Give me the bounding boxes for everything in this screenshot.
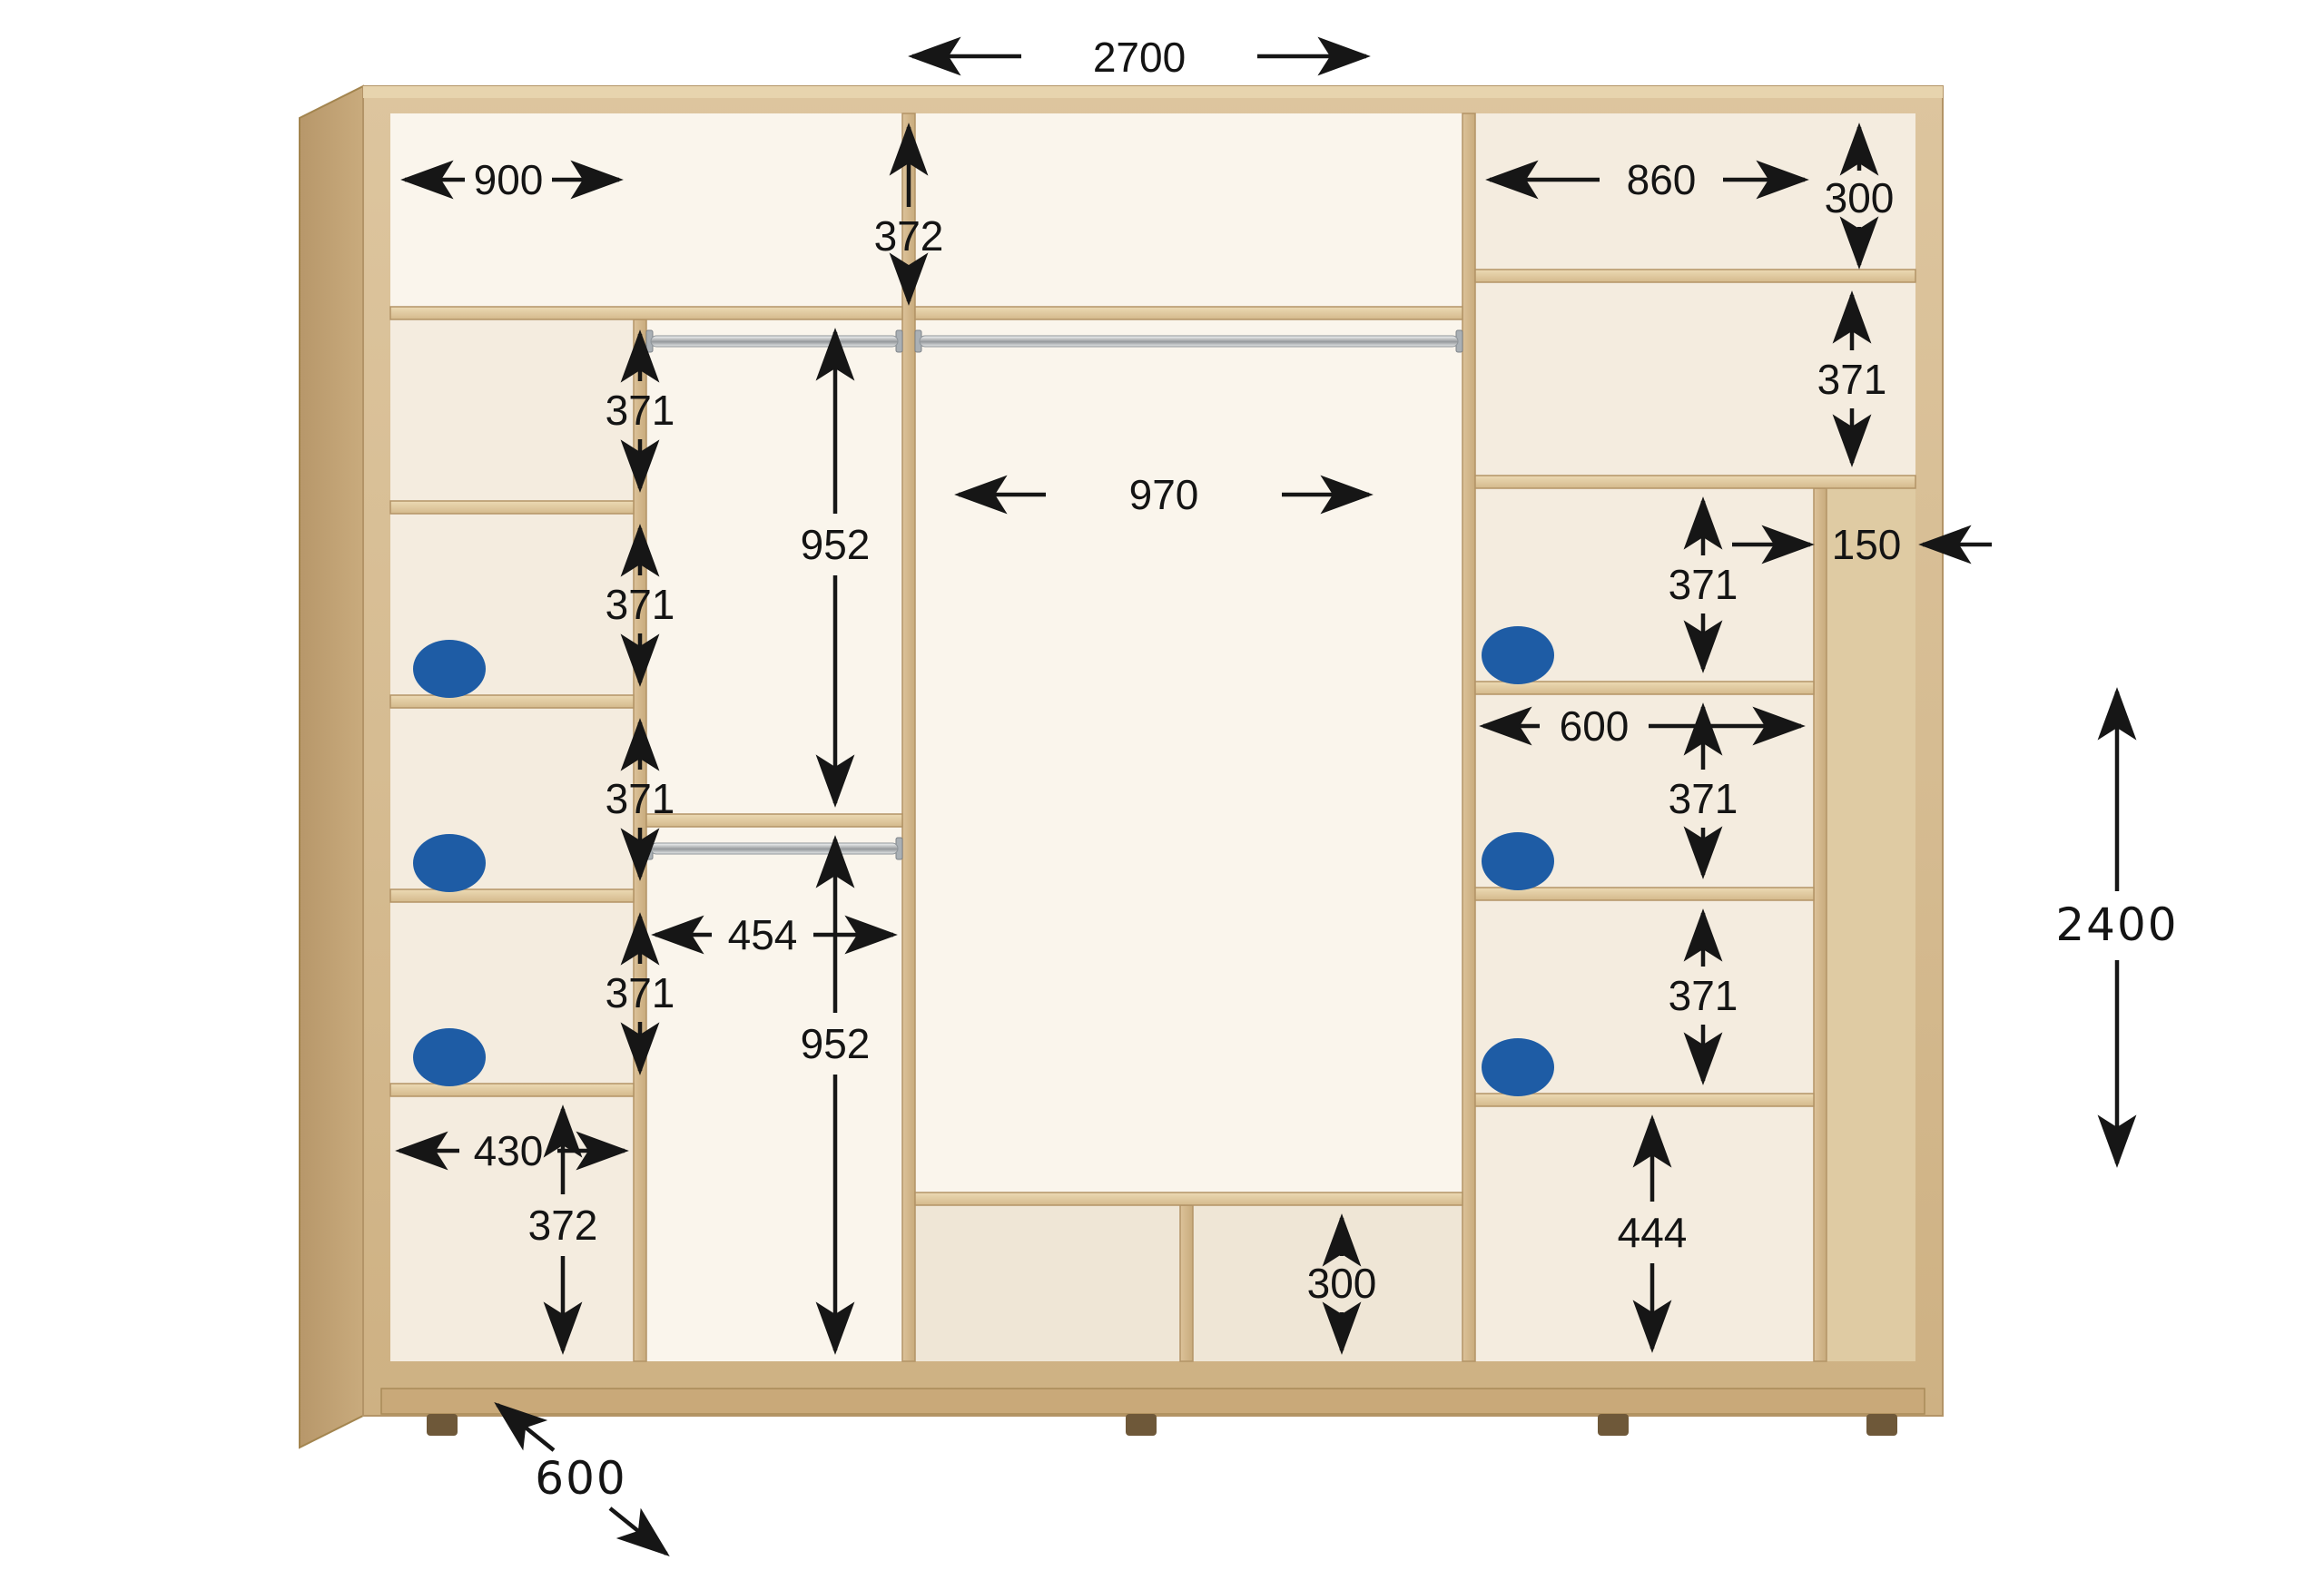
- dim-right-bottom-height-value: 444: [1618, 1209, 1688, 1256]
- wardrobe-foot: [1126, 1414, 1157, 1436]
- dim-left-cell1-label: 371: [606, 387, 675, 434]
- dim-right-cell3-label: 371: [1669, 775, 1738, 822]
- shelf-top-right: [1475, 270, 1915, 282]
- dim-side-slot-width-label: 150: [1832, 521, 1902, 568]
- dim-overall-height-label: 2400: [2055, 898, 2178, 951]
- shelf-left-3: [390, 889, 634, 902]
- dim-hang-width-label: 454: [728, 911, 798, 958]
- dim-left-bottom-height-label: 372: [528, 1202, 598, 1249]
- dim-overall-depth: 600: [497, 1405, 666, 1554]
- divider-side-slot: [1814, 488, 1827, 1361]
- wardrobe-foot: [1866, 1414, 1897, 1436]
- dim-hang-upper-label: 952: [801, 521, 871, 568]
- divider-center-right: [1462, 113, 1475, 1361]
- blue-marker-left-2: [413, 834, 486, 892]
- shelf-top-left: [390, 307, 902, 319]
- blue-marker-right-3: [1482, 1038, 1554, 1096]
- shelf-left-1: [390, 501, 634, 514]
- blue-marker-left-1: [413, 640, 486, 698]
- divider-bottom-band: [1180, 1205, 1193, 1361]
- dim-hang-lower-label: 952: [801, 1020, 871, 1067]
- shelf-hanging-mid: [646, 814, 902, 827]
- dim-right-col-width-label: 600: [1560, 702, 1630, 750]
- top-left-cell-back: [390, 113, 902, 307]
- center-opening-back: [915, 319, 1462, 1192]
- shelf-center-floor: [915, 1192, 1462, 1205]
- dim-center-width-label: 970: [1129, 471, 1199, 518]
- shelf-right-1: [1475, 476, 1915, 488]
- dim-top-right-height-label: 300: [1825, 174, 1895, 221]
- dim-top-left-height-label: 372: [874, 212, 944, 260]
- dim-right-cell2-label: 371: [1669, 561, 1738, 608]
- wardrobe-top-edge: [363, 86, 1943, 98]
- wardrobe-foot: [1598, 1414, 1629, 1436]
- dim-top-right-width-label: 860: [1627, 156, 1697, 203]
- blue-marker-left-3: [413, 1028, 486, 1086]
- hanging-section-back: [646, 319, 902, 1361]
- side-slot-back: [1827, 488, 1915, 1361]
- wardrobe-dimension-diagram: 2700 900 372 860 300 371 371 371: [0, 0, 2324, 1590]
- dim-left-bottom-width-label: 430: [474, 1127, 544, 1174]
- dim-right-cell4-label: 371: [1669, 972, 1738, 1019]
- top-center-cell-back: [915, 113, 1462, 307]
- blue-marker-right-2: [1482, 832, 1554, 890]
- dim-left-cell2-label: 371: [606, 581, 675, 628]
- dim-top-left-width-label: 900: [474, 156, 544, 203]
- dim-left-cell4-label: 371: [606, 969, 675, 1016]
- wardrobe-plinth: [381, 1389, 1925, 1414]
- shelf-top-center: [915, 307, 1462, 319]
- dim-overall-height: 2400: [2055, 692, 2178, 1163]
- shelf-left-4: [390, 1084, 634, 1096]
- wardrobe-foot: [427, 1414, 458, 1436]
- dim-right-cell1-label: 371: [1817, 356, 1887, 403]
- dim-overall-depth-label: 600: [535, 1452, 626, 1505]
- dim-left-cell3-label: 371: [606, 775, 675, 822]
- blue-marker-right-1: [1482, 626, 1554, 684]
- dim-overall-width: 2700: [912, 34, 1366, 81]
- dim-center-bottom-height-label: 300: [1307, 1260, 1377, 1307]
- wardrobe-left-side-panel: [300, 86, 363, 1448]
- shelf-left-2: [390, 695, 634, 708]
- dim-overall-width-label: 2700: [1093, 34, 1186, 81]
